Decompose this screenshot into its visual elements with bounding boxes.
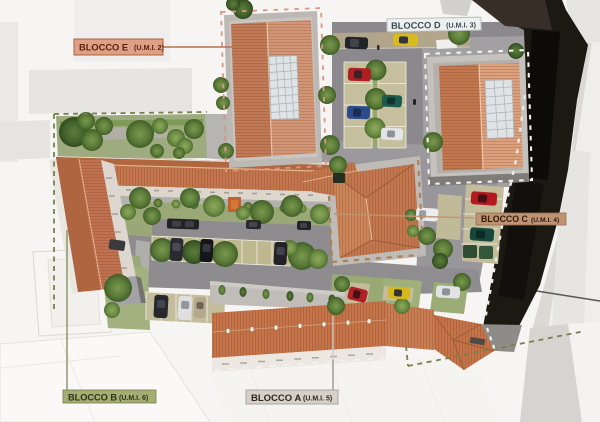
svg-text:BLOCCO B: BLOCCO B bbox=[68, 392, 117, 402]
svg-text:BLOCCO D: BLOCCO D bbox=[391, 20, 441, 31]
svg-text:(U.M.I. 5): (U.M.I. 5) bbox=[303, 396, 332, 403]
svg-text:BLOCCO C: BLOCCO C bbox=[481, 214, 529, 224]
svg-text:(U.M.I. 3): (U.M.I. 3) bbox=[446, 20, 477, 30]
svg-text:BLOCCO E: BLOCCO E bbox=[79, 43, 128, 53]
svg-text:(U.M.I. 2): (U.M.I. 2) bbox=[134, 43, 165, 52]
svg-text:BLOCCO A: BLOCCO A bbox=[251, 393, 301, 404]
svg-text:(U.M.I. 4): (U.M.I. 4) bbox=[531, 217, 559, 224]
svg-text:(U.M.I. 6): (U.M.I. 6) bbox=[119, 395, 148, 402]
